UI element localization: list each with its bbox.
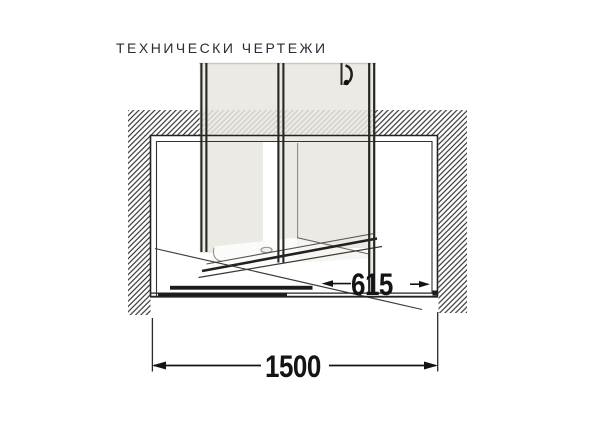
floor-tracks xyxy=(158,286,438,297)
wall-hatch-left xyxy=(128,135,151,315)
dimension-615-label: 615 xyxy=(351,268,393,300)
wall-hatch-right xyxy=(439,135,468,313)
dim-615-arrow-left xyxy=(322,280,334,287)
glass-panel-right-upper xyxy=(277,64,375,142)
dim-615-arrow-right xyxy=(419,281,430,288)
dim-1500-arrow-left xyxy=(152,362,166,370)
track-bar-upper xyxy=(170,286,313,290)
glass-panel-right xyxy=(285,142,375,248)
glass-panel-left xyxy=(200,142,264,253)
technical-drawings-section: ТЕХНИЧЕСКИ ЧЕРТЕЖИ xyxy=(0,0,601,430)
glass-panel-left-upper xyxy=(200,64,278,142)
dimension-1500-label: 1500 xyxy=(265,350,321,382)
dim-1500-arrow-right xyxy=(424,362,438,370)
handle-knob xyxy=(344,80,349,85)
